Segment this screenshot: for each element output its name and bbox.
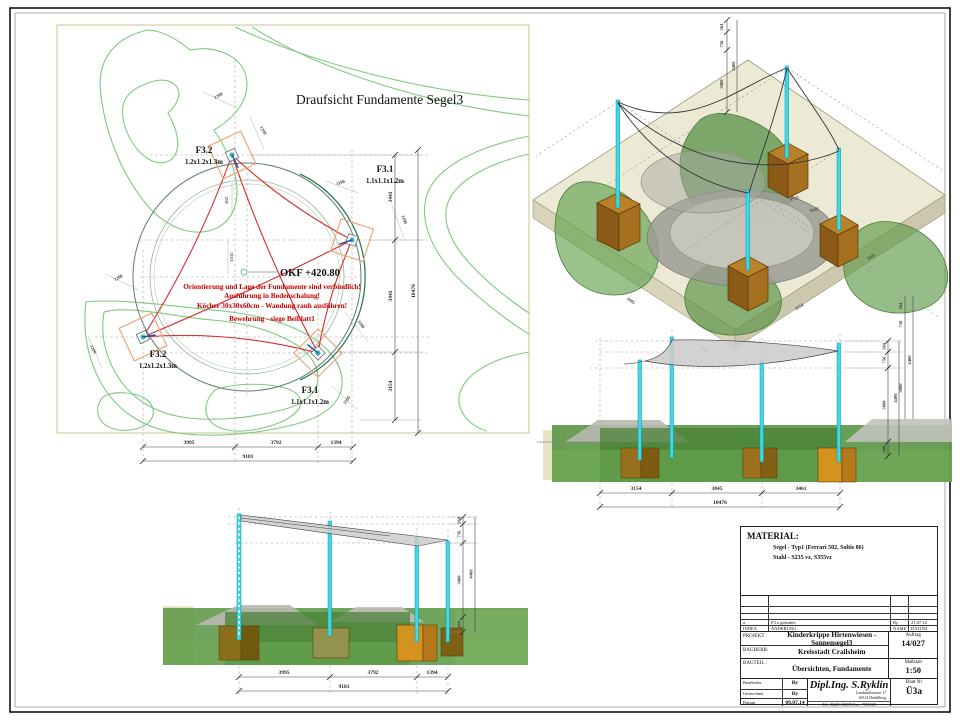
massstab-value: 1:50 (889, 665, 937, 675)
dim-label: 1200 (259, 125, 268, 136)
dim-label: 1394 (331, 440, 342, 446)
firma-address1: Landstuhlstrasse 17 (856, 691, 886, 695)
drawing-sheet: 1200 1200 1100 1100 1200 1200 1100 1100 … (0, 0, 960, 720)
dim-label: 3792 (271, 440, 282, 446)
er-sail (624, 340, 838, 367)
foundation-size: 1.2x1.2x1.3m (139, 363, 177, 370)
dim-label: 264 (719, 23, 724, 31)
gezeichnet-value: Ry (783, 689, 807, 698)
material-line: Stahl - S235 vz, S355vz (773, 555, 931, 561)
dim-label: 400 (882, 445, 887, 453)
bauteil-row: BAUTEIL : Übersichten, Fundamente Maßsta… (741, 658, 937, 678)
dim-label: 1200 (113, 273, 124, 282)
dim-label: 9181 (243, 454, 254, 460)
material-section: MATERIAL: Segel - Typ1 (Ferrari 502, Sol… (741, 527, 937, 595)
dim-label: 3154 (388, 380, 394, 391)
dim-label: 1100 (342, 394, 352, 405)
firma-address2: 69123 Heidelberg (859, 696, 886, 700)
title-block: MATERIAL: Segel - Typ1 (Ferrari 502, Sol… (740, 526, 938, 705)
note-line: Bewehrung - siege Beiblatt1 (229, 315, 315, 323)
bearbeiter-label: Bearbeiter (741, 679, 783, 689)
dim-label: 615 (224, 196, 229, 204)
dim-label: 3845 (712, 486, 723, 492)
signature-grid: Bearbeiter Ry Gezeichnet Ry Datum 09.07.… (741, 679, 808, 706)
massstab-cell: Maßstab 1:50 (889, 659, 937, 678)
foundation-label: F3.2 (150, 349, 167, 359)
dim-label: 264 (898, 302, 903, 310)
dim-label: 3000 (457, 575, 462, 585)
dim-label: 264 (882, 342, 887, 350)
bauteil-label: BAUTEIL : (741, 659, 775, 678)
dim-label: 3154 (631, 486, 642, 492)
dim-label: 756 (719, 40, 724, 48)
dim-label: 264 (457, 516, 462, 524)
material-line: Segel - Typ1 (Ferrari 502, Soltis 86) (773, 545, 931, 551)
dim-label: 3000 (719, 79, 724, 89)
auftrag-value: 14/027 (889, 638, 937, 648)
blatt-value: Ü3a (891, 687, 937, 697)
material-title: MATERIAL: (747, 531, 931, 541)
bauteil-value: Übersichten, Fundamente (775, 659, 888, 678)
datum-value: 09.07.14 (783, 698, 807, 706)
plan-title: Draufsicht Fundamente Segel3 (296, 92, 463, 107)
okf-label: OKF +420.80 (280, 268, 340, 279)
site-boundary (57, 25, 529, 433)
elevation-right: 3154 3845 3461 10476 264 756 3000 400 (537, 330, 952, 510)
firma-cell: Dipl.Ing. S.Ryklin Landstuhlstrasse 1769… (808, 679, 891, 706)
dim-label: 4400 (469, 569, 474, 579)
gezeichnet-label: Gezeichnet (741, 689, 783, 698)
okf-marker (241, 269, 277, 275)
firma-tel: Tel.: 06221-830673 Fax: -7965368 (808, 701, 890, 707)
note-line: Orientierung und Lage der Fundamente sin… (183, 283, 361, 291)
elevation-left: 3995 3792 1394 9181 264 756 3000 400 (163, 508, 528, 694)
sail-cables (143, 155, 352, 353)
dim-label: 1100 (357, 319, 367, 330)
dim-label: 1100 (401, 214, 409, 225)
auftrag-cell: Auftrag 14/027 (889, 632, 937, 658)
dim-label: 3995 (626, 296, 637, 306)
dim-label: 1200 (213, 91, 224, 100)
dim-label: 3441 (388, 191, 394, 202)
dim-label: 4400 (893, 393, 898, 403)
el-bottom-dims: 3995 3792 1394 9181 (236, 670, 451, 694)
dim-label: 4400 (731, 61, 736, 71)
projekt-value: Kinderkrippe Hirtenwiesen - Sonnensegel3 (775, 632, 888, 645)
foundation-size: 1.1x1.1x1.2m (291, 399, 329, 406)
dim-label: 3792 (368, 670, 379, 676)
dim-label: 3000 (882, 400, 887, 410)
dim-label: 10476 (411, 284, 417, 298)
dim-label: 3441 (388, 290, 394, 301)
revision-table: a F3.x geändert Ry 21.07.14 INDEX ÄNDERU… (741, 595, 937, 631)
blatt-label: Blatt Nr (891, 680, 937, 685)
plan-texts: Draufsicht Fundamente Segel3 F3.2 1.2x1.… (139, 92, 463, 406)
bearbeiter-value: Ry (783, 679, 807, 689)
dim-label: 400 (457, 620, 462, 628)
plan-bottom-dims: 3995 3792 1394 9181 (140, 440, 356, 464)
firma-name: Dipl.Ing. S.Ryklin (808, 680, 890, 691)
blatt-cell: Blatt Nr Ü3a (891, 679, 937, 706)
plan-axes (95, 60, 430, 463)
er-bottom-dims: 3154 3845 3461 10476 (597, 486, 843, 510)
dim-label: 756 (882, 356, 887, 364)
bauherr-label: BAUHERR: (741, 646, 775, 658)
el-side-dims: 264 756 3000 400 4400 (450, 514, 478, 635)
foundation-label: F3.2 (196, 145, 213, 155)
el-axes (195, 508, 470, 694)
dim-label: 10476 (713, 500, 727, 506)
dim-label: 756 (898, 320, 903, 328)
dim-label: 3995 (279, 670, 290, 676)
dim-label: 4400 (907, 355, 912, 365)
el-foundations (219, 625, 463, 661)
note-line: Ausführung in Bodenschalung! (224, 292, 320, 300)
dim-label: 756 (457, 530, 462, 538)
dim-label: 1200 (89, 344, 98, 355)
foundation-size: 1.1x1.1x1.2m (366, 178, 404, 185)
dim-label: 1394 (427, 670, 438, 676)
dim-label: 1100 (335, 178, 346, 186)
projekt-label: PROJEKT : (741, 632, 775, 645)
foundation-size: 1.2x1.2x1.3m (185, 159, 223, 166)
note-line: Köcher 30x30x60cm - Wandung rauh ausführ… (197, 302, 347, 310)
foundation-label: F3.1 (377, 164, 394, 174)
datum-label: Datum (741, 698, 783, 706)
dim-label: 3995 (184, 440, 195, 446)
dim-label: 9181 (339, 684, 350, 690)
projekt-bauherr-rows: PROJEKT : Kinderkrippe Hirtenwiesen - So… (741, 631, 937, 658)
bauherr-value: Kreisstadt Crailsheim (775, 646, 888, 658)
dim-label: 1515 (229, 252, 234, 262)
signature-row: Bearbeiter Ry Gezeichnet Ry Datum 09.07.… (741, 678, 937, 706)
dim-label: 3461 (796, 486, 807, 492)
foundation-label: F3.1 (302, 385, 319, 395)
